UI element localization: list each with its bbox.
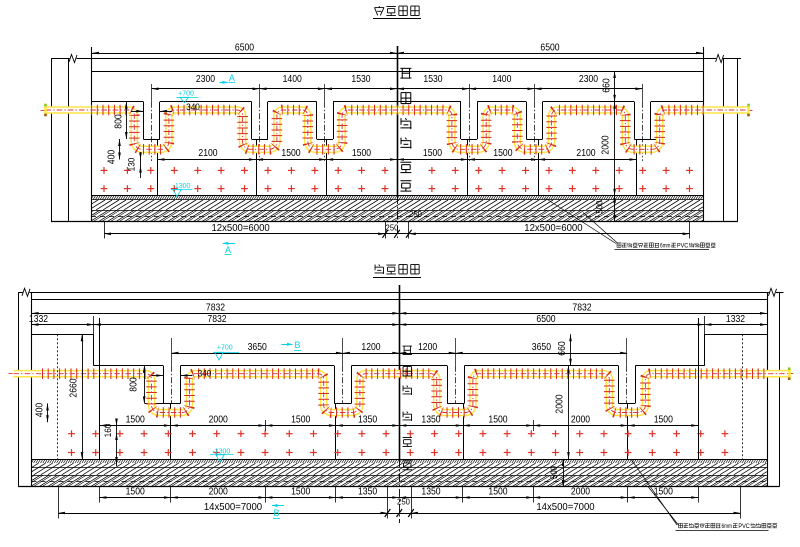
svg-text:1350: 1350	[421, 486, 440, 497]
svg-text:1200: 1200	[361, 342, 380, 353]
svg-text:1500: 1500	[488, 486, 507, 497]
svg-text:7832: 7832	[206, 302, 225, 313]
svg-text:1332: 1332	[726, 314, 745, 325]
svg-text:3650: 3650	[248, 342, 267, 353]
svg-text:A: A	[229, 73, 235, 83]
svg-text:1530: 1530	[351, 74, 370, 85]
svg-text:800: 800	[129, 377, 140, 392]
svg-text:7832: 7832	[207, 314, 226, 325]
svg-text:14x500=7000: 14x500=7000	[536, 502, 595, 513]
svg-text:2300: 2300	[579, 74, 598, 85]
svg-text:340: 340	[186, 102, 200, 113]
svg-text:PVC: PVC	[677, 243, 689, 250]
svg-text:2660: 2660	[69, 378, 80, 397]
svg-text:500: 500	[595, 201, 605, 214]
svg-text:1500: 1500	[352, 148, 371, 159]
svg-text:2000: 2000	[555, 394, 566, 413]
svg-text:B: B	[294, 340, 300, 350]
svg-text:400: 400	[35, 403, 46, 418]
svg-text:1500: 1500	[493, 148, 512, 159]
svg-text:12x500=6000: 12x500=6000	[524, 223, 583, 234]
svg-text:3650: 3650	[532, 342, 551, 353]
svg-text:2000: 2000	[571, 486, 590, 497]
svg-text:1500: 1500	[423, 148, 442, 159]
svg-text:660: 660	[557, 341, 568, 356]
svg-text:660: 660	[601, 78, 612, 93]
svg-text:6mm: 6mm	[721, 523, 732, 530]
svg-text:2100: 2100	[198, 148, 217, 159]
svg-text:2000: 2000	[209, 486, 228, 497]
svg-text:1350: 1350	[358, 486, 377, 497]
svg-text:12x500=6000: 12x500=6000	[211, 223, 270, 234]
svg-text:1500: 1500	[126, 486, 145, 497]
svg-text:250: 250	[386, 223, 399, 233]
svg-text:1200: 1200	[418, 342, 437, 353]
svg-text:2000: 2000	[571, 414, 590, 425]
svg-text:500: 500	[549, 466, 559, 479]
svg-text:2300: 2300	[196, 74, 215, 85]
svg-text:1530: 1530	[423, 74, 442, 85]
svg-text:1350: 1350	[421, 414, 440, 425]
svg-text:+700: +700	[217, 344, 233, 351]
svg-text:-1300: -1300	[173, 183, 191, 190]
svg-text:2100: 2100	[576, 148, 595, 159]
svg-text:1350: 1350	[358, 414, 377, 425]
svg-text:400: 400	[107, 150, 118, 165]
svg-text:6500: 6500	[540, 43, 559, 54]
svg-text:6500: 6500	[235, 43, 254, 54]
svg-text:130: 130	[127, 158, 138, 172]
svg-text:+700: +700	[178, 90, 194, 97]
svg-text:B: B	[273, 508, 279, 518]
svg-text:1500: 1500	[488, 414, 507, 425]
svg-text:14x500=7000: 14x500=7000	[204, 502, 263, 513]
svg-text:1332: 1332	[29, 314, 48, 325]
svg-text:6mm: 6mm	[660, 243, 671, 250]
svg-text:250: 250	[409, 209, 422, 219]
svg-text:800: 800	[114, 114, 125, 129]
svg-text:1500: 1500	[281, 148, 300, 159]
svg-text:2000: 2000	[601, 135, 612, 154]
svg-text:1500: 1500	[126, 414, 145, 425]
svg-text:2000: 2000	[209, 414, 228, 425]
svg-text:A: A	[225, 245, 231, 255]
svg-text:250: 250	[397, 497, 410, 507]
svg-text:1400: 1400	[283, 74, 302, 85]
svg-text:1400: 1400	[492, 74, 511, 85]
svg-text:6500: 6500	[536, 314, 555, 325]
svg-text:PVC: PVC	[738, 523, 750, 530]
svg-text:340: 340	[198, 368, 212, 379]
svg-text:7832: 7832	[572, 302, 591, 313]
svg-text:1500: 1500	[654, 414, 673, 425]
svg-text:160: 160	[103, 424, 114, 438]
svg-text:1500: 1500	[291, 414, 310, 425]
svg-text:1500: 1500	[291, 486, 310, 497]
